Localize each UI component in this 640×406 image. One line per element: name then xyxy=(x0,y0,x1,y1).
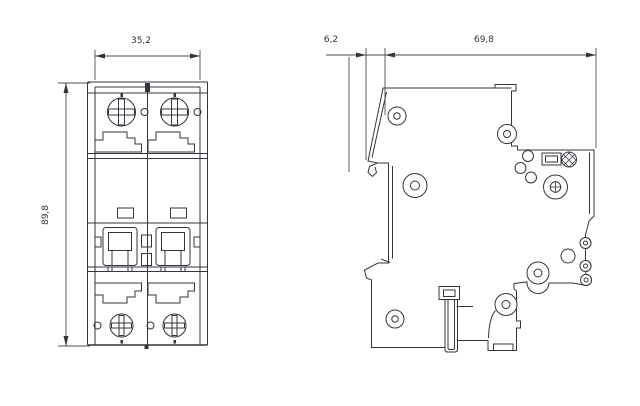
toggle-handle-pole1 xyxy=(109,233,132,251)
phillips-cross-icon xyxy=(112,316,132,336)
foot-pad xyxy=(494,344,514,351)
top-terminal-screw-pole2 xyxy=(161,98,189,126)
pivot-hole xyxy=(561,249,575,263)
front-width-label: 35,2 xyxy=(131,36,151,46)
contact-window xyxy=(542,153,561,165)
small-hole-top-pole1 xyxy=(141,109,148,116)
sealing-eyelet-cluster xyxy=(515,151,537,184)
label-window-pole2 xyxy=(171,208,187,218)
top-clamp-pole1 xyxy=(95,132,142,152)
bottom-clamp-pole2 xyxy=(148,283,195,303)
side-body-depth-label: 69,8 xyxy=(474,35,494,45)
label-window-pole1 xyxy=(118,208,134,218)
side-tab-right xyxy=(194,237,200,247)
din-claw-hook xyxy=(368,163,378,177)
technical-drawing-page: 35,2 89,8 6,2 69,8 xyxy=(0,0,640,406)
linking-pin-lower xyxy=(142,254,152,266)
divider-top-tab xyxy=(145,83,150,92)
side-claw-depth-label: 6,2 xyxy=(324,35,338,45)
top-clamp-pole2 xyxy=(148,132,195,152)
terminal-screw-boss xyxy=(544,175,568,199)
front-height-label: 89,8 xyxy=(41,205,51,225)
small-hole-bottom-pole2 xyxy=(147,322,154,329)
toggle-handle-pole2 xyxy=(162,233,185,251)
side-tab-left xyxy=(95,237,101,247)
side-view xyxy=(365,85,595,353)
front-escutcheon xyxy=(95,87,200,345)
linking-pin-upper xyxy=(142,235,152,247)
bottom-clamp-pole1 xyxy=(95,283,142,303)
front-view xyxy=(88,82,208,349)
side-view-rivets xyxy=(386,107,549,328)
hatched-screw xyxy=(561,151,577,169)
phillips-cross-icon xyxy=(109,99,135,125)
din-clip-arm-inner xyxy=(372,92,387,158)
clip-window xyxy=(444,290,456,297)
front-knuckles xyxy=(580,238,592,286)
front-view-tick-marks xyxy=(121,83,177,349)
phillips-cross-icon xyxy=(165,316,185,336)
dimension-front-height xyxy=(58,83,90,346)
phillips-cross-icon xyxy=(162,99,188,125)
bottom-terminal-screw-pole1 xyxy=(110,314,133,337)
breaker-dimension-drawing xyxy=(0,0,640,406)
dimension-front-width xyxy=(95,50,200,80)
divider-bottom-tab xyxy=(145,345,149,349)
top-terminal-screw-pole1 xyxy=(108,98,136,126)
bottom-terminal-screw-pole2 xyxy=(163,314,186,337)
